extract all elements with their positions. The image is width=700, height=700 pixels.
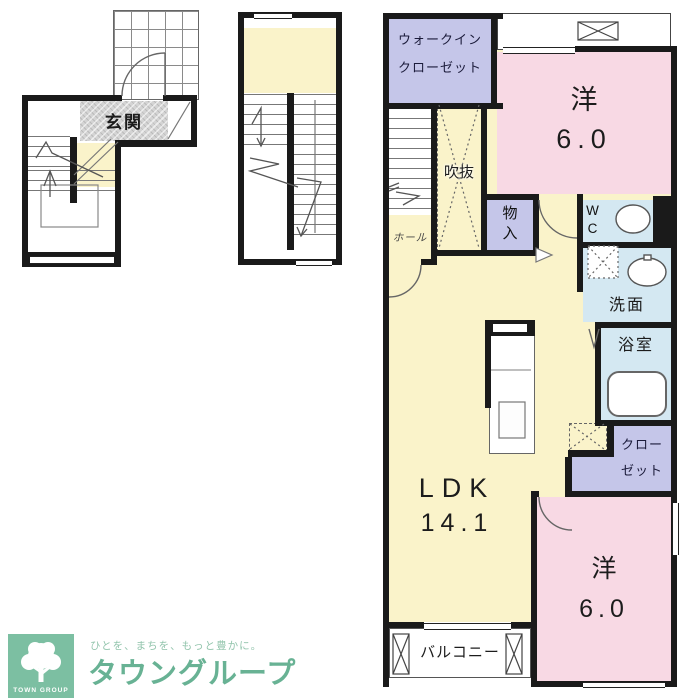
balcony-label: バルコニー [410, 640, 510, 662]
kitchen-wall [485, 320, 491, 408]
window [583, 682, 665, 688]
window [254, 13, 292, 19]
closet-label-line1: クロー [615, 434, 669, 452]
bedroom-top-name: 洋 [554, 80, 614, 114]
wall [577, 242, 677, 248]
window [672, 503, 679, 555]
wall [568, 450, 614, 457]
stair-landing-area [244, 28, 336, 93]
wall [653, 196, 671, 242]
logo-mark-text: TOWN GROUP [8, 684, 74, 696]
stairs-right-flight [294, 94, 336, 236]
wall [115, 143, 121, 252]
storage-label: 物入 [501, 204, 519, 243]
wall [238, 12, 244, 265]
wall [575, 46, 677, 52]
wall [671, 46, 677, 687]
logo-brand-name: タウングループ [88, 652, 308, 690]
ldk-name: LDK [407, 472, 507, 504]
bedroom-bottom-name: 洋 [574, 552, 634, 582]
genkan-label: 玄関 [94, 107, 154, 133]
entrance-porch-tiles [113, 10, 199, 100]
window [424, 623, 511, 630]
closet-room-ext [572, 457, 614, 491]
washroom-label: 洗面 [595, 292, 659, 314]
kitchen-hood-slot [493, 324, 527, 332]
walkin-closet-label-line1: ウォークイン [391, 28, 489, 48]
stairs-1f-upper [28, 136, 70, 170]
wall [565, 457, 572, 497]
ldk-size: 14.1 [402, 508, 512, 538]
bedroom-bottom-size: 6.0 [566, 594, 642, 624]
wall [70, 137, 77, 203]
wc-label: WC [585, 202, 600, 237]
wall [511, 622, 537, 628]
bathroom-label: 浴室 [603, 332, 669, 354]
wall [115, 140, 197, 147]
wall [22, 95, 122, 101]
window [296, 260, 332, 266]
wall [191, 95, 197, 143]
stairs-2f [389, 108, 431, 216]
tree-icon [8, 636, 74, 686]
logo-square: TOWN GROUP [8, 634, 74, 698]
wall [481, 103, 487, 256]
wall [421, 259, 437, 265]
wall [595, 322, 601, 426]
roof-eaves-strip [497, 13, 671, 50]
wall [595, 322, 677, 328]
hall-label: ホール [390, 230, 430, 244]
wall [481, 194, 539, 200]
refrigerator-space [569, 423, 607, 452]
wall [383, 13, 503, 19]
wall [336, 12, 342, 265]
wall [383, 622, 424, 628]
wall [531, 491, 537, 687]
wall [572, 491, 677, 497]
walkin-closet-label-line2: クローゼット [391, 56, 489, 76]
floorplan-image: 玄関 ウォークイン クローゼット 洋 6.0 吹抜 ホール 物入 WC 洗面 浴… [0, 0, 700, 700]
window [503, 47, 575, 54]
wall [533, 194, 539, 256]
wall [577, 248, 583, 292]
bedroom-top-size: 6.0 [544, 122, 624, 156]
shoe-corner [168, 101, 191, 141]
void-label: 吹抜 [437, 160, 481, 182]
kitchen-counter [489, 324, 535, 454]
wall [437, 250, 539, 256]
wall [431, 103, 437, 265]
stairs-left-flight [244, 94, 287, 152]
wall [287, 93, 294, 250]
wall [577, 194, 583, 242]
wall [491, 19, 497, 109]
window [30, 256, 114, 264]
closet-label-line2: ゼット [615, 460, 669, 478]
wall [22, 95, 28, 267]
wall [383, 13, 389, 687]
bedroom-bottom-room [537, 497, 671, 681]
